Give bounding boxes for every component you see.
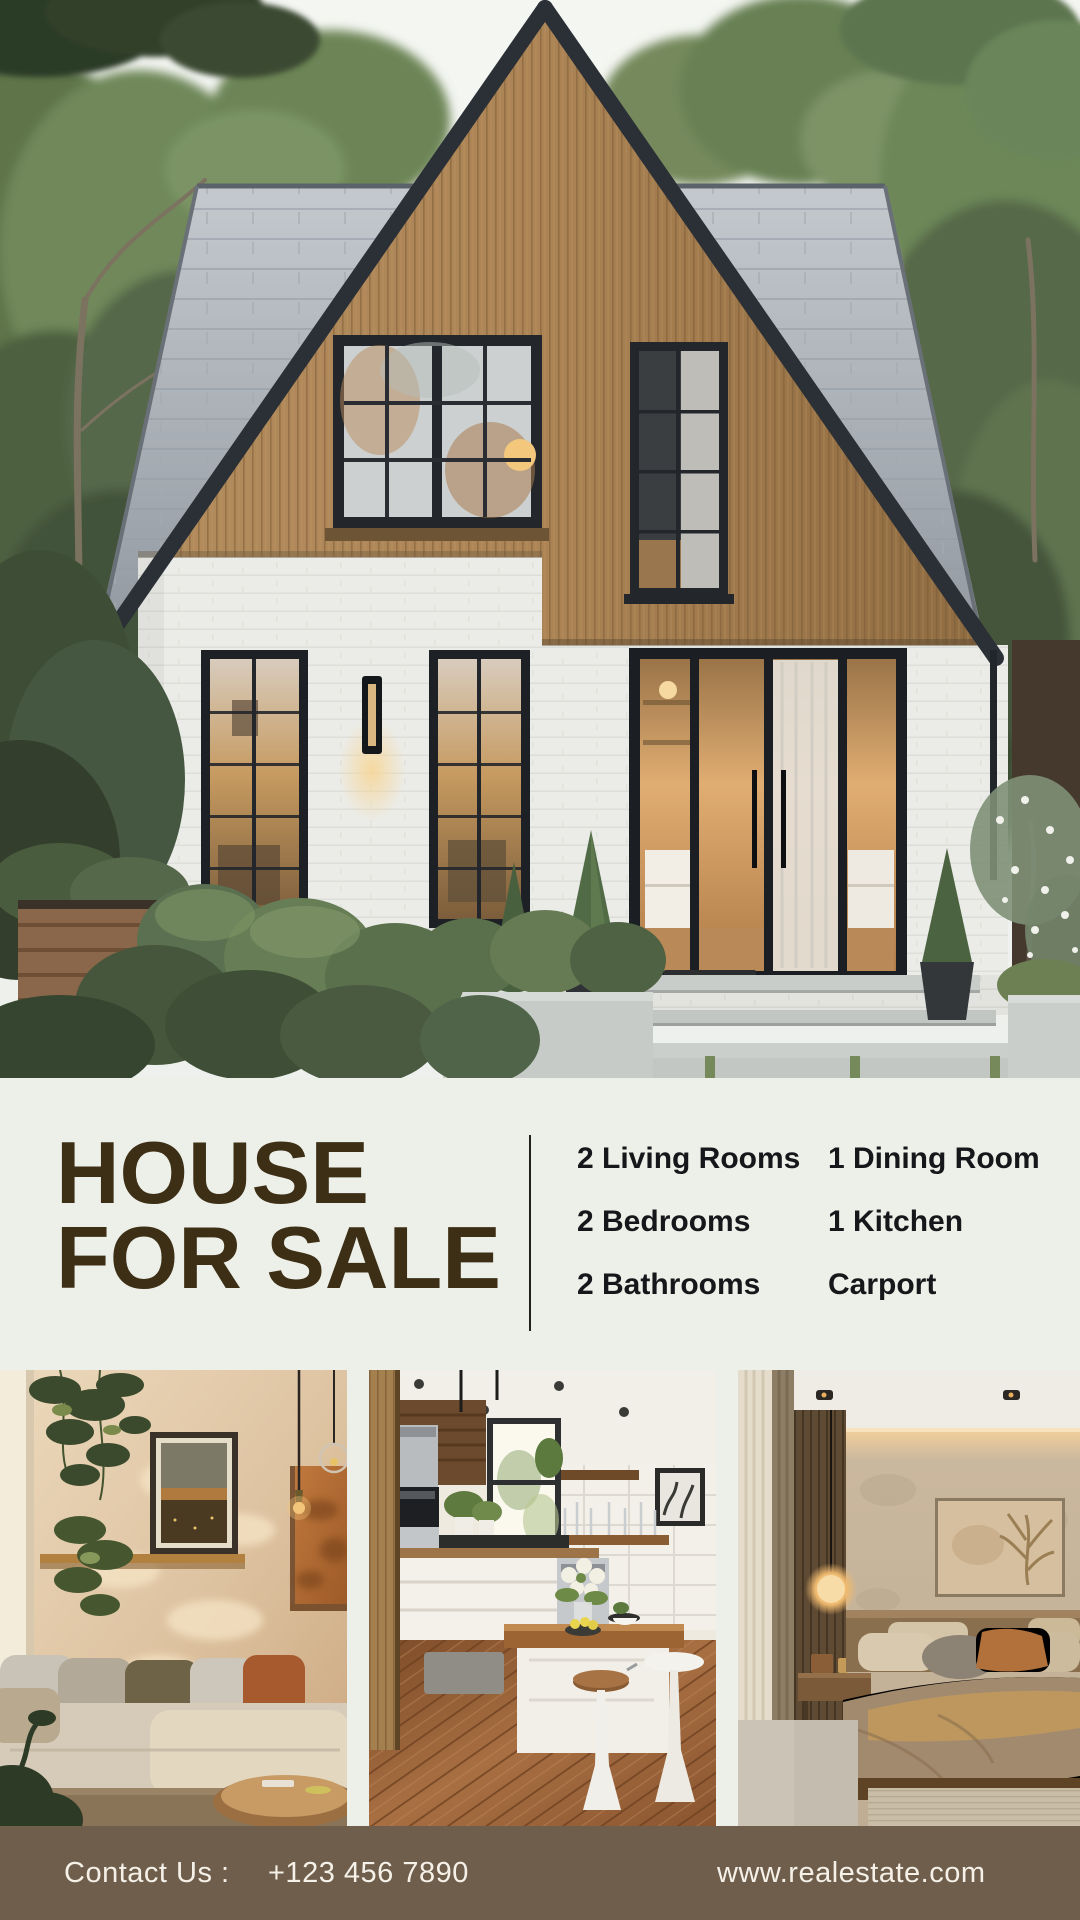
feature-bathrooms: 2 Bathrooms [577,1270,828,1300]
right-planter [997,959,1080,1078]
bedroom-photo [738,1370,1080,1826]
contact-phone: +123 456 7890 [268,1826,469,1920]
feature-carport: Carport [828,1270,1040,1300]
bedroom-art [935,1498,1065,1597]
house-exterior-illustration [0,0,1080,1078]
kitchen-illustration [369,1370,716,1826]
cove-light [843,1430,1080,1460]
framed-art [150,1432,238,1554]
title-line2: FOR SALE [56,1208,501,1307]
upper-narrow-window [624,342,734,604]
wall-shelf [40,1554,245,1563]
vertical-divider [529,1135,531,1331]
bedroom-rug [868,1788,1080,1826]
info-section: HOUSE FOR SALE 2 Living Rooms 1 Dining R… [0,1078,1080,1370]
footer-bar: Contact Us : +123 456 7890 www.realestat… [0,1826,1080,1920]
feature-dining-room: 1 Dining Room [828,1144,1040,1174]
kitchen-rug [424,1652,504,1694]
feature-list: 2 Living Rooms 1 Dining Room 2 Bedrooms … [577,1144,1040,1300]
feature-bedrooms: 2 Bedrooms [577,1207,828,1237]
kitchen-photo [369,1370,716,1826]
bedroom-illustration [738,1370,1080,1826]
hero-house-photo [0,0,1080,1078]
kitchen-art [655,1468,705,1526]
feature-kitchen: 1 Kitchen [828,1207,1040,1237]
living-room-photo [0,1370,347,1826]
living-room-illustration [0,1370,347,1826]
entry-door [629,648,907,983]
house-for-sale-flyer: HOUSE FOR SALE 2 Living Rooms 1 Dining R… [0,0,1080,1920]
website-url: www.realestate.com [717,1826,986,1920]
contact-label: Contact Us : [64,1826,230,1920]
page-title: HOUSE FOR SALE [56,1130,501,1300]
upper-window [325,335,549,541]
feature-living-rooms: 2 Living Rooms [577,1144,828,1174]
photo-gallery [0,1370,1080,1826]
